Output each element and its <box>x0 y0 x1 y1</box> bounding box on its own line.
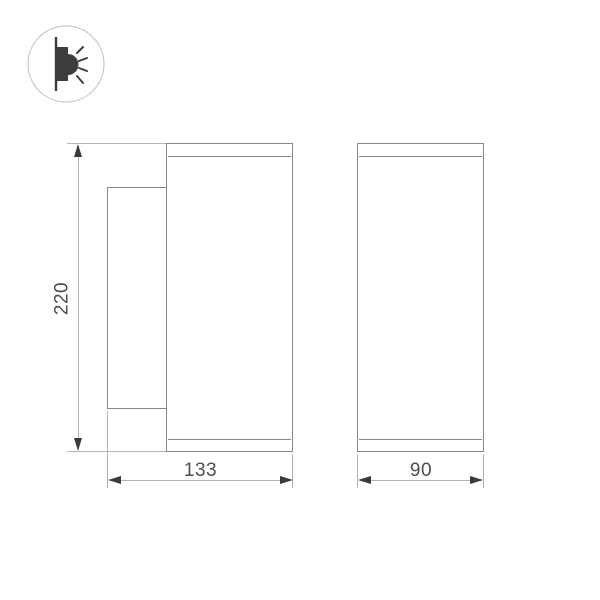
side-view-top-seam-line <box>168 156 291 157</box>
side-view-wall-bracket <box>107 187 168 409</box>
lamp-lens-icon <box>68 54 79 75</box>
front-view-body <box>357 143 484 452</box>
height-dimension-line <box>78 146 79 449</box>
height-dimension-label: 220 <box>53 269 72 329</box>
front-width-dimension-label: 90 <box>358 461 484 480</box>
dimension-drawing-canvas: 220 133 90 <box>0 0 600 600</box>
side-width-dimension-label: 133 <box>108 461 293 480</box>
wall-lamp-icon <box>26 24 106 104</box>
light-rays-icon <box>77 47 87 83</box>
side-view-body <box>166 143 293 452</box>
arrow-down-icon <box>74 438 82 451</box>
lamp-body-icon <box>57 47 68 81</box>
side-view-bottom-seam-line <box>168 439 291 440</box>
front-view-top-seam-line <box>359 156 482 157</box>
arrow-up-icon <box>74 144 82 157</box>
height-extension-line-bottom <box>67 451 166 452</box>
front-view-bottom-seam-line <box>359 439 482 440</box>
